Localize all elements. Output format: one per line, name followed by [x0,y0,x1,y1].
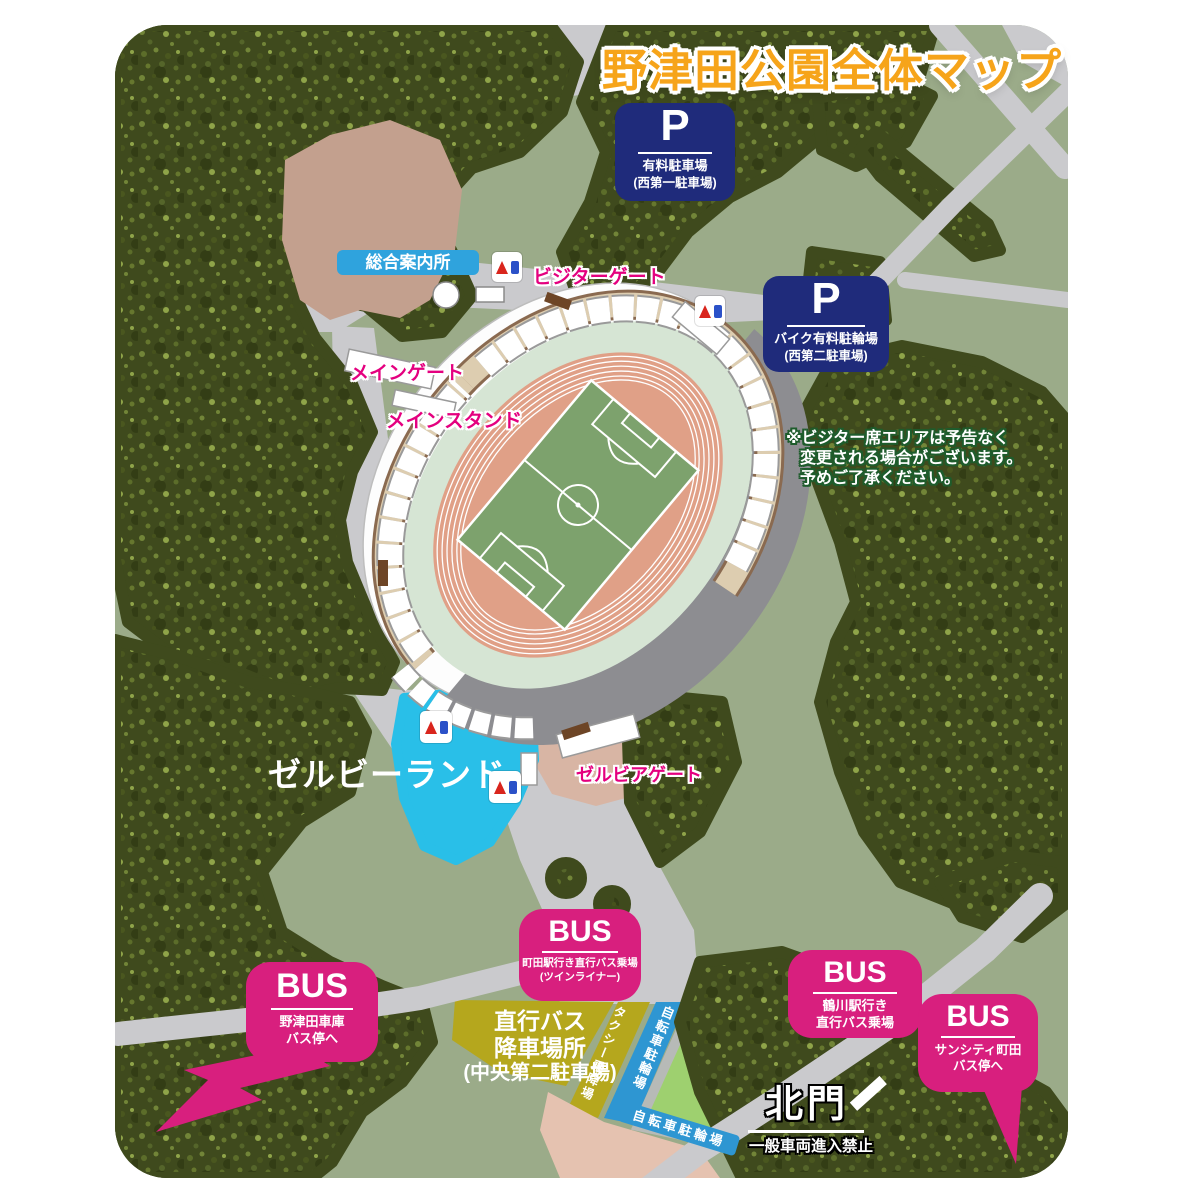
north-gate-label: 北門 [742,1086,872,1124]
bus-line: バス停へ [246,1031,378,1048]
bus-line: サンシティ町田 [918,1042,1038,1058]
parking-symbol: P [615,103,735,149]
bus-symbol: BUS [519,909,641,948]
separator-line [638,152,712,154]
bus-symbol: BUS [788,950,922,989]
notice-line: ※ビジター席エリアは予告なく [786,429,1022,449]
north-gate-underline [748,1130,864,1133]
parking-line: バイク有料駐輪場 [763,331,889,348]
toilet-man-figure [509,781,517,794]
park-map-page: 野津田公園全体マップ P 有料駐車場 (西第一駐車場) P バイク有料駐輪場 (… [0,0,1196,1196]
bus-line: 町田駅行き直行バス乗場 [522,957,638,971]
parking-line: (西第一駐車場) [615,175,735,191]
tree-small [551,863,581,893]
parking-line: 有料駐車場 [615,158,735,175]
parking-sign-west-second: P バイク有料駐輪場 (西第二駐車場) [763,276,889,372]
toilet-man-figure [714,305,722,318]
bus-line: 直行バス乗場 [788,1015,922,1032]
bus-symbol: BUS [246,962,378,1005]
parking-line: (西第二駐車場) [763,348,889,364]
visitor-seat-notice: ※ビジター席エリアは予告なく 変更される場合がございます。 予めご了承ください。 [786,429,1022,489]
bus-line: バス停へ [918,1058,1038,1074]
map-title: 野津田公園全体マップ [602,48,1062,93]
visitor-gate-label: ビジターゲート [533,268,666,287]
bus-line: (ツインライナー) [522,971,638,985]
notice-line: 変更される場合がございます。 [786,449,1022,469]
bus-dropoff-line: (中央第二駐車場) [440,1062,640,1086]
toilet-woman-figure [425,721,437,734]
notice-line: 予めご了承ください。 [786,469,1022,489]
separator-line [941,1036,1015,1038]
bus-lines: 町田駅行き直行バス乗場 (ツインライナー) [522,957,638,984]
zelvia-gate-label: ゼルビアゲート [576,766,702,784]
bus-sign-nozuta-depot: BUS 野津田車庫 バス停へ [246,962,378,1062]
separator-line [542,951,618,953]
separator-line [813,992,896,994]
toilet-man-figure [440,721,448,734]
info-building [476,287,504,302]
bus-sign-machida: BUS 町田駅行き直行バス乗場 (ツインライナー) [519,909,641,1001]
parking-sign-west-first: P 有料駐車場 (西第一駐車場) [615,103,735,201]
bus-line: 野津田車庫 [246,1014,378,1031]
gate-booth [521,753,537,785]
bus-sign-suncity: BUS サンシティ町田 バス停へ [918,994,1038,1092]
toilet-woman-figure [699,305,711,318]
gate-marker [378,560,388,586]
separator-line [271,1008,353,1010]
toilet-icon [492,252,522,282]
toilet-icon [695,296,725,326]
toilet-woman-figure [496,261,508,274]
roundabout [433,282,459,308]
zelvie-land-label: ゼルビーランド [268,758,506,791]
parking-symbol: P [763,276,889,322]
main-stand-label: メインスタンド [386,412,522,432]
bus-sign-tsurukawa: BUS 鶴川駅行き 直行バス乗場 [788,950,922,1038]
toilet-man-figure [511,261,519,274]
bus-line: 鶴川駅行き [788,998,922,1015]
bus-symbol: BUS [918,994,1038,1033]
north-gate-note: 一般車両進入禁止 [716,1139,906,1155]
separator-line [787,325,865,327]
main-gate-label: メインゲート [350,364,464,383]
info-center-label: 総合案内所 [337,250,479,275]
toilet-icon [420,711,452,743]
